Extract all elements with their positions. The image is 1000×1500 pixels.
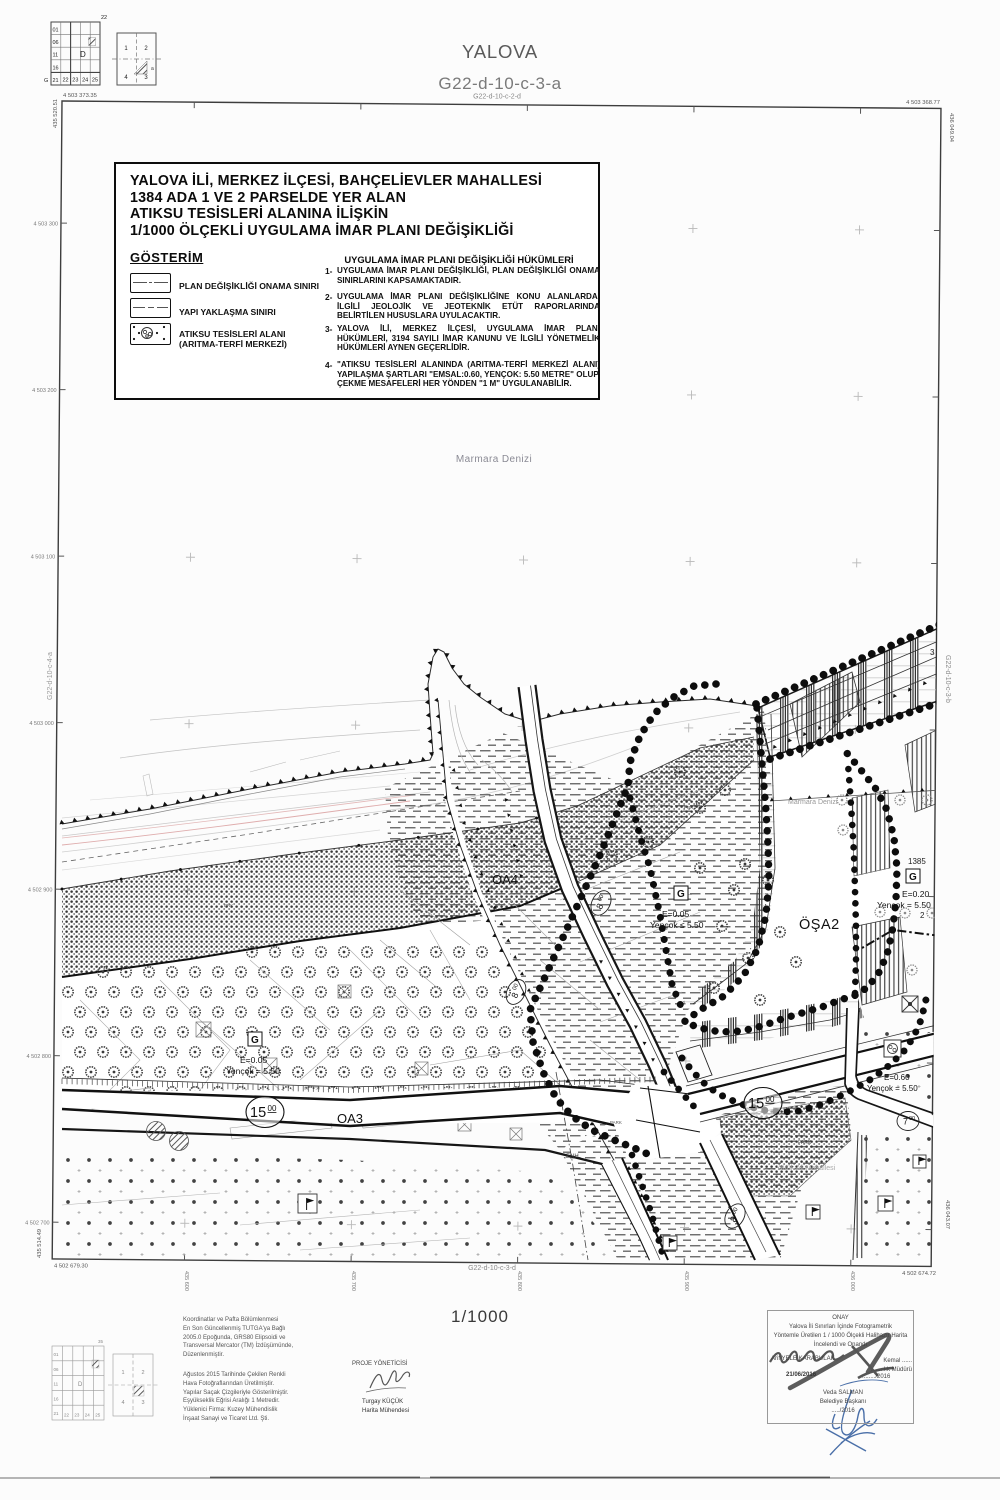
svg-text:24: 24 <box>85 1413 91 1418</box>
svg-text:PARK: PARK <box>610 1120 622 1125</box>
svg-text:G: G <box>909 872 917 883</box>
svg-text:23: 23 <box>74 1413 80 1418</box>
svg-text:01: 01 <box>53 28 59 34</box>
svg-text:16: 16 <box>53 65 59 71</box>
svg-text:435 514.49: 435 514.49 <box>37 1229 43 1258</box>
svg-text:D: D <box>78 1382 83 1388</box>
svg-text:01: 01 <box>54 1352 60 1357</box>
svg-text:00: 00 <box>766 1095 775 1104</box>
svg-text:4 502 700: 4 502 700 <box>25 1221 49 1227</box>
svg-text:G22-d-10-c-3-b: G22-d-10-c-3-b <box>944 655 951 703</box>
svg-text:25: 25 <box>95 1413 101 1418</box>
svg-text:G22-d-10-c-4-a: G22-d-10-c-4-a <box>47 652 54 700</box>
svg-text:Yençok = 5.50: Yençok = 5.50 <box>867 1084 918 1093</box>
svg-text:3: 3 <box>141 1400 144 1406</box>
svg-text:G22-d-10-c-2-d: G22-d-10-c-2-d <box>473 94 521 101</box>
svg-text:15: 15 <box>250 1105 266 1121</box>
svg-text:436 049.04: 436 049.04 <box>948 113 954 143</box>
svg-text:Yençok ≤ 5.50: Yençok ≤ 5.50 <box>650 920 704 930</box>
svg-text:1385: 1385 <box>908 857 926 866</box>
svg-text:4 503 300: 4 503 300 <box>34 222 58 228</box>
svg-text:Marmara Denizi: Marmara Denizi <box>456 454 532 465</box>
svg-text:ÖŞA2: ÖŞA2 <box>799 915 840 933</box>
svg-text:G: G <box>677 889 685 900</box>
svg-text:06: 06 <box>54 1367 60 1372</box>
svg-text:Yençok = 5.50: Yençok = 5.50 <box>877 900 931 910</box>
svg-text:E=0.05: E=0.05 <box>240 1055 267 1065</box>
svg-text:1: 1 <box>121 1370 124 1376</box>
svg-text:2: 2 <box>141 1370 144 1376</box>
svg-text:435 700: 435 700 <box>350 1271 356 1291</box>
svg-text:OA4: OA4 <box>492 872 518 887</box>
svg-text:435 600: 435 600 <box>183 1271 189 1291</box>
svg-text:4 502 900: 4 502 900 <box>28 888 52 894</box>
svg-text:436 043.07: 436 043.07 <box>944 1200 950 1229</box>
svg-text:4 502 679.30: 4 502 679.30 <box>54 1264 88 1270</box>
svg-text:11: 11 <box>54 1382 59 1387</box>
svg-text:4 503 100: 4 503 100 <box>31 555 55 561</box>
svg-text:22: 22 <box>101 15 107 21</box>
svg-text:16: 16 <box>54 1396 60 1401</box>
svg-text:Yençok = 5.50: Yençok = 5.50 <box>226 1066 280 1076</box>
svg-text:435 520.51: 435 520.51 <box>53 99 59 128</box>
svg-text:436 000: 436 000 <box>849 1271 855 1291</box>
svg-text:35: 35 <box>98 1339 104 1344</box>
svg-text:G22-d-10-c-3-d: G22-d-10-c-3-d <box>468 1265 516 1272</box>
svg-text:435 800: 435 800 <box>516 1271 522 1291</box>
svg-text:2: 2 <box>920 911 925 920</box>
svg-text:4 502 800: 4 502 800 <box>27 1054 51 1060</box>
svg-text:00: 00 <box>268 1104 277 1113</box>
svg-text:4 503 368.77: 4 503 368.77 <box>906 100 940 106</box>
svg-text:21: 21 <box>54 1411 60 1416</box>
svg-text:G: G <box>251 1035 259 1046</box>
svg-text:PRK: PRK <box>684 805 693 810</box>
svg-text:15: 15 <box>748 1096 764 1112</box>
svg-text:435 900: 435 900 <box>683 1271 689 1291</box>
svg-text:22: 22 <box>64 1413 70 1418</box>
svg-text:Marmara Denizi: Marmara Denizi <box>788 799 838 806</box>
svg-text:4 503 000: 4 503 000 <box>29 721 53 727</box>
svg-text:E=0.20: E=0.20 <box>902 889 929 899</box>
svg-text:4 503 200: 4 503 200 <box>32 388 56 394</box>
svg-text:PRK: PRK <box>224 903 233 908</box>
svg-text:ENH: ENH <box>566 1154 579 1160</box>
svg-text:a: a <box>151 66 154 72</box>
svg-text:7: 7 <box>903 1117 908 1127</box>
svg-text:4 502 674.72: 4 502 674.72 <box>902 1271 936 1277</box>
svg-text:3: 3 <box>930 648 935 657</box>
svg-text:OA3: OA3 <box>337 1111 363 1126</box>
svg-text:Yörük Ali Mahallesi: Yörük Ali Mahallesi <box>776 1165 836 1172</box>
svg-text:00: 00 <box>909 1116 915 1122</box>
svg-text:E=0.05: E=0.05 <box>662 909 689 919</box>
svg-text:E=0.60: E=0.60 <box>884 1073 910 1082</box>
svg-text:PARK: PARK <box>798 1140 812 1146</box>
svg-text:4: 4 <box>121 1400 124 1406</box>
